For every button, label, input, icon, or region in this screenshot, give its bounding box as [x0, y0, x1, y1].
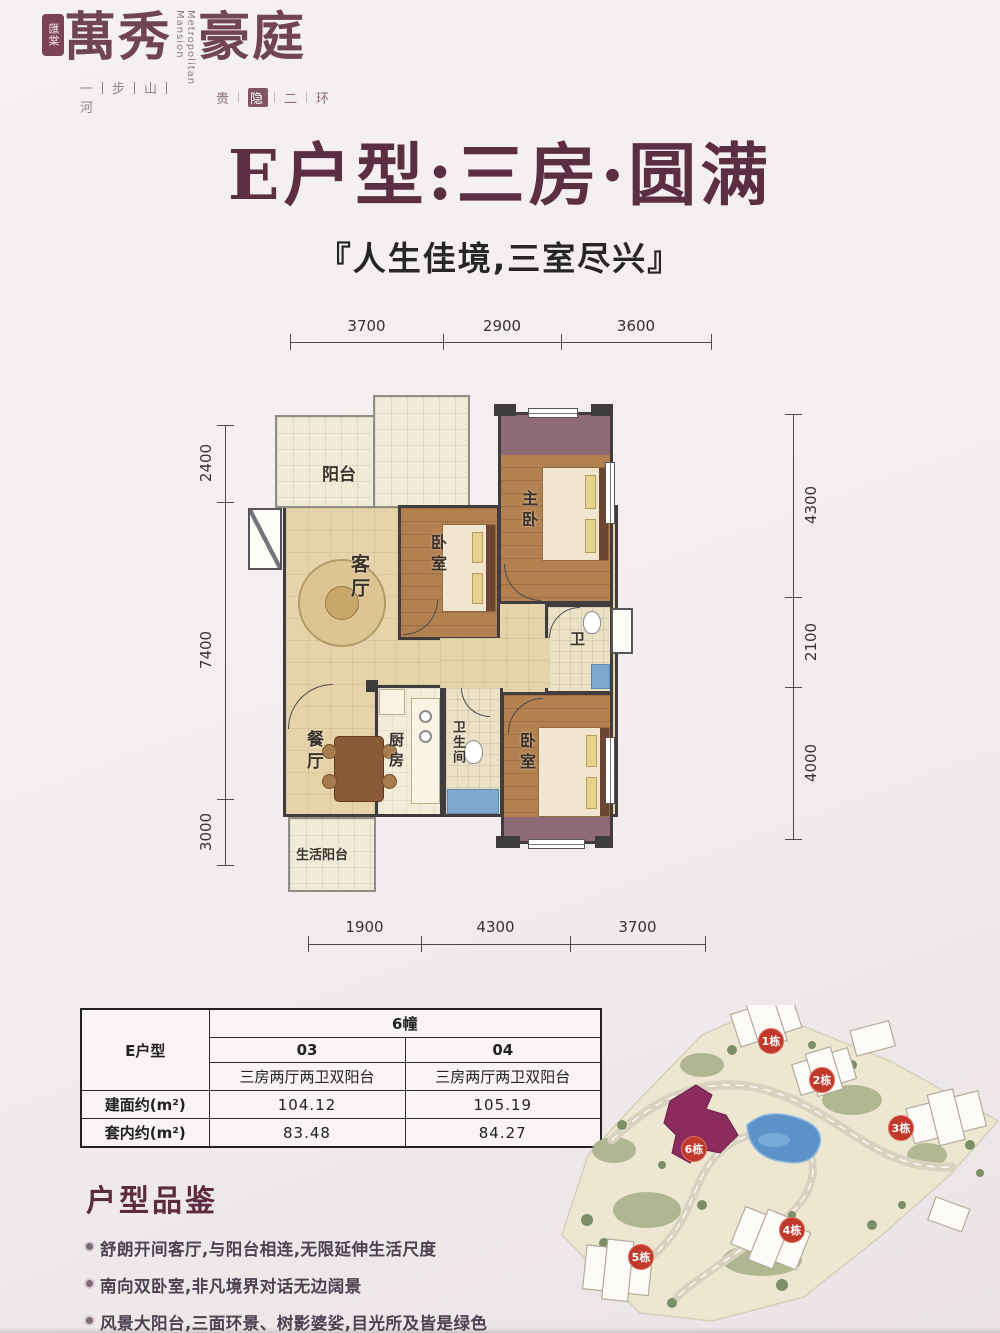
spec-unit-label: E户型 [81, 1009, 209, 1091]
window-bedroom-b-bottom [528, 839, 585, 849]
window-bedroom-b-right [605, 737, 615, 804]
tagline-char-3: 二 [284, 88, 300, 107]
label-life-balcony: 生活阳台 [296, 844, 348, 863]
brand-logo: 匯棠 萬秀 Metropolitan Mansion 豪庭 一丨步丨山丨河 贵 … [42, 6, 332, 116]
unit-spec-table: E户型 6幢 03 04 三房两厅两卫双阳台 三房两厅两卫双阳台 建面约(m²)… [80, 1008, 602, 1148]
dim-left-1: 2400 [197, 433, 215, 493]
window-box-bath [611, 608, 633, 654]
review-bullet-1: 舒朗开间客厅,与阳台相连,无限延伸生活尺度 [86, 1236, 556, 1260]
tagline-char-2: 隐 [248, 88, 268, 107]
dim-right-3: 4000 [802, 733, 820, 793]
badge-building-5: 5栋 [629, 1245, 654, 1270]
dim-left-3: 3000 [197, 802, 215, 862]
room-balcony-right [373, 395, 470, 508]
bathmat-small [591, 664, 610, 689]
spec-area-label: 建面约(m²) [81, 1091, 209, 1119]
label-balcony: 阳台 [322, 460, 356, 485]
master-wall-shade [501, 415, 610, 455]
label-bedroom-b: 卧室 [514, 732, 538, 774]
svg-text:1栋: 1栋 [762, 1034, 781, 1048]
spec-desc-03: 三房两厅两卫双阳台 [209, 1063, 405, 1091]
wall-pier [496, 836, 520, 848]
dining-chair [382, 774, 397, 789]
label-bath-small: 卫 [570, 628, 585, 649]
dim-bottom-2: 4300 [421, 918, 570, 936]
bullet-dot [86, 1280, 93, 1287]
dim-left-2: 7400 [197, 620, 215, 680]
spec-col-03: 03 [209, 1038, 405, 1063]
svg-text:2栋: 2栋 [813, 1073, 832, 1087]
flyer-page: 匯棠 萬秀 Metropolitan Mansion 豪庭 一丨步丨山丨河 贵 … [0, 0, 1000, 1333]
dim-line-right [793, 414, 794, 839]
wall-pier [595, 836, 613, 848]
window-master-right [605, 462, 615, 524]
window-master-top [528, 408, 578, 418]
bullet-dot [86, 1317, 93, 1324]
dim-top-3: 3600 [561, 317, 711, 335]
dim-top-1: 3700 [290, 317, 443, 335]
svg-text:4栋: 4栋 [783, 1223, 802, 1237]
badge-building-1: 1栋 [759, 1029, 784, 1054]
page-title: E户型:三房·圆满 [0, 120, 1000, 219]
building-small [928, 1197, 970, 1232]
wall-pier [591, 404, 613, 416]
wall-pier [494, 404, 516, 416]
dim-bottom-3: 3700 [570, 918, 705, 936]
review-bullet-3: 风景大阳台,三面环景、树影婆娑,目光所及皆是绿色 [86, 1310, 556, 1333]
review-bullet-2: 南向双卧室,非凡境界对话无边阔景 [86, 1273, 556, 1297]
label-dining: 餐厅 [301, 730, 326, 774]
label-master: 主卧 [516, 490, 540, 532]
brand-name-en: Metropolitan Mansion [174, 10, 196, 76]
label-kitchen: 厨房 [386, 732, 407, 772]
spec-inner-03: 83.48 [209, 1119, 405, 1148]
bed-bedroom-a [442, 524, 496, 612]
stove-burner [419, 710, 432, 723]
spec-inner-label: 套内约(m²) [81, 1119, 209, 1148]
badge-building-4: 4栋 [780, 1218, 805, 1243]
label-bathroom: 卫生间 [448, 720, 467, 765]
spec-area-03: 104.12 [209, 1091, 405, 1119]
kitchen-pantry [379, 689, 405, 715]
dim-top-2: 2900 [443, 317, 561, 335]
tagline-char-1: 贵 [216, 88, 232, 107]
building-small [850, 1021, 895, 1056]
site-map: 1栋 2栋 3栋 4栋 5栋 6栋 [552, 1005, 1000, 1333]
shower-mat [447, 789, 499, 814]
brand-en-line2: Mansion [174, 10, 185, 59]
dim-line-bottom [308, 944, 705, 945]
brand-name-left: 萬秀 [64, 6, 172, 70]
label-living: 客厅 [346, 554, 373, 602]
dining-table [334, 736, 384, 802]
stove-burner [419, 730, 432, 743]
review-heading: 户型品鉴 [86, 1176, 556, 1220]
dim-right-1: 4300 [802, 475, 820, 535]
brand-seal: 匯棠 [42, 14, 64, 56]
wall-pier [366, 680, 378, 692]
svg-text:5栋: 5栋 [632, 1250, 651, 1264]
dining-chair [322, 774, 337, 789]
brand-name-right: 豪庭 [198, 6, 306, 70]
room-hallway [440, 638, 550, 688]
badge-building-6: 6栋 [682, 1137, 707, 1162]
toilet-bath-small [583, 611, 601, 634]
spec-building-header: 6幢 [209, 1009, 601, 1038]
bed-master [542, 467, 609, 561]
dim-right-2: 2100 [802, 612, 820, 672]
bullet-dot [86, 1243, 93, 1250]
svg-text:3栋: 3栋 [892, 1121, 911, 1135]
svg-text:6栋: 6栋 [685, 1142, 704, 1156]
label-bedroom-a: 卧室 [425, 534, 449, 576]
bed-bedroom-b [538, 727, 610, 817]
tagline-char-4: 环 [316, 88, 332, 107]
dim-line-top [290, 342, 711, 343]
page-subtitle: 『人生佳境,三室尽兴』 [0, 232, 1000, 280]
dim-bottom-1: 1900 [308, 918, 421, 936]
window-box-living [248, 508, 282, 570]
badge-building-3: 3栋 [889, 1116, 914, 1141]
review-section: 户型品鉴 舒朗开间客厅,与阳台相连,无限延伸生活尺度 南向双卧室,非凡境界对话无… [86, 1176, 556, 1333]
tagline-left: 一丨步丨山丨河 [80, 78, 176, 116]
brand-en-line1: Metropolitan [185, 10, 196, 85]
floorplan: 3700 2900 3600 1900 4300 3700 2400 7400 … [198, 312, 848, 977]
badge-building-2: 2栋 [810, 1068, 835, 1093]
